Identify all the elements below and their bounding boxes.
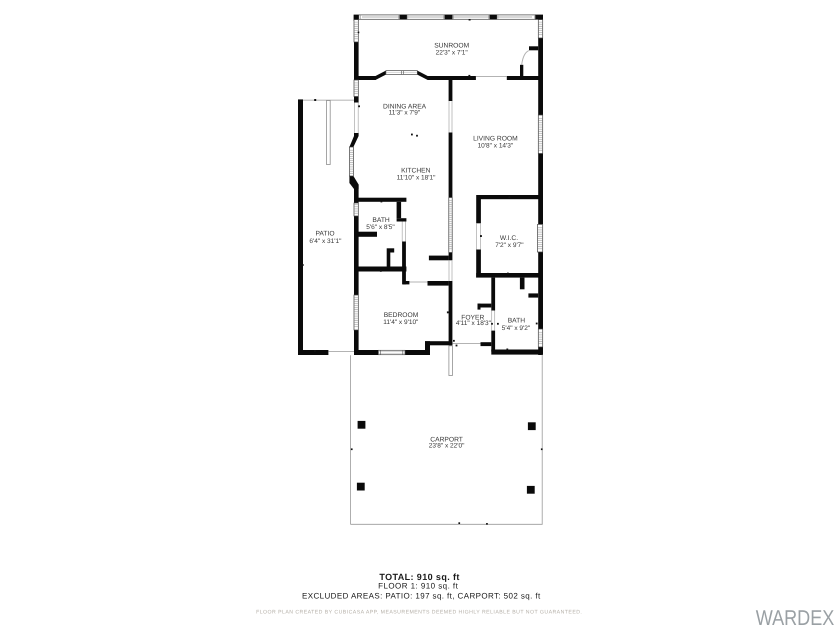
svg-text:FLOOR 1: 910 sq. ft: FLOOR 1: 910 sq. ft bbox=[378, 582, 458, 591]
svg-text:6'4" x 31'1": 6'4" x 31'1" bbox=[309, 238, 342, 245]
svg-text:TOTAL: 910 sq. ft: TOTAL: 910 sq. ft bbox=[379, 572, 459, 582]
svg-text:10'8" x 14'3": 10'8" x 14'3" bbox=[478, 142, 514, 149]
svg-text:W.I.C.: W.I.C. bbox=[500, 235, 518, 242]
svg-text:4'11" x 18'3": 4'11" x 18'3" bbox=[456, 320, 492, 327]
svg-text:11'10" x 18'1": 11'10" x 18'1" bbox=[397, 175, 436, 182]
svg-text:EXCLUDED AREAS: PATIO: 197 sq.: EXCLUDED AREAS: PATIO: 197 sq. ft, CARPO… bbox=[302, 591, 541, 600]
svg-text:23'8" x 22'0": 23'8" x 22'0" bbox=[429, 443, 465, 450]
svg-text:BEDROOM: BEDROOM bbox=[384, 312, 419, 319]
svg-text:7'2" x 9'7": 7'2" x 9'7" bbox=[495, 242, 524, 249]
svg-text:BATH: BATH bbox=[508, 317, 526, 324]
svg-text:WARDEX: WARDEX bbox=[756, 606, 835, 630]
svg-text:5'6" x 8'5": 5'6" x 8'5" bbox=[366, 224, 395, 231]
svg-text:5'4" x 9'2": 5'4" x 9'2" bbox=[502, 325, 531, 332]
svg-text:11'4" x 9'10": 11'4" x 9'10" bbox=[383, 319, 419, 326]
svg-text:FLOOR PLAN CREATED BY CUBICASA: FLOOR PLAN CREATED BY CUBICASA APP, MEAS… bbox=[256, 610, 582, 616]
svg-text:SUNROOM: SUNROOM bbox=[434, 42, 469, 49]
svg-text:BATH: BATH bbox=[372, 217, 390, 224]
svg-text:22'3" x 7'1": 22'3" x 7'1" bbox=[436, 50, 469, 57]
svg-text:11'3" x 7'9": 11'3" x 7'9" bbox=[389, 110, 421, 117]
svg-text:PATIO: PATIO bbox=[315, 231, 334, 238]
